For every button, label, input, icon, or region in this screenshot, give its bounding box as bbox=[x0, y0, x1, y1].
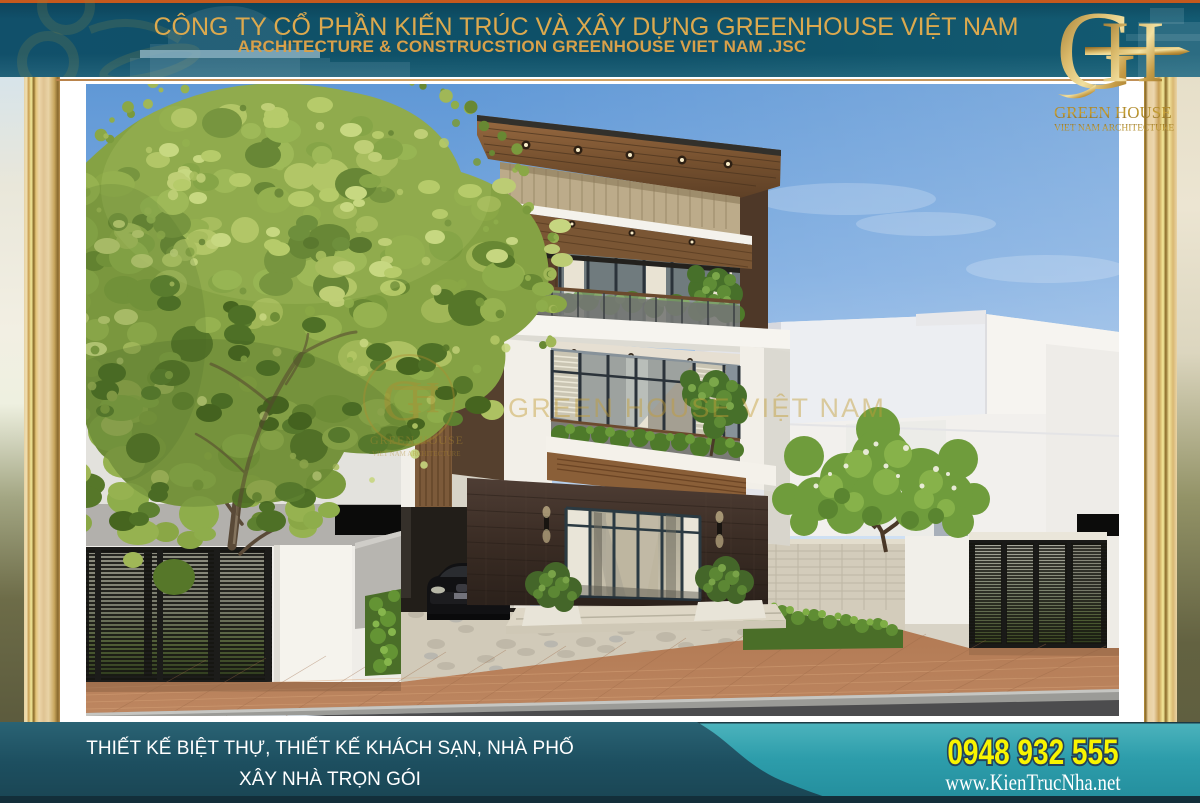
svg-text:H: H bbox=[1101, 6, 1165, 101]
svg-text:GREEN HOUSE: GREEN HOUSE bbox=[370, 433, 464, 447]
svg-text:GREEN HOUSE VIỆT NAM: GREEN HOUSE VIỆT NAM bbox=[508, 392, 886, 423]
svg-text:GREEN HOUSE: GREEN HOUSE bbox=[1054, 103, 1172, 122]
svg-text:H: H bbox=[408, 373, 440, 422]
svg-text:VIET NAM ARCHITECTURE: VIET NAM ARCHITECTURE bbox=[372, 450, 461, 458]
svg-text:VIET NAM ARCHITECTURE: VIET NAM ARCHITECTURE bbox=[1054, 124, 1174, 134]
